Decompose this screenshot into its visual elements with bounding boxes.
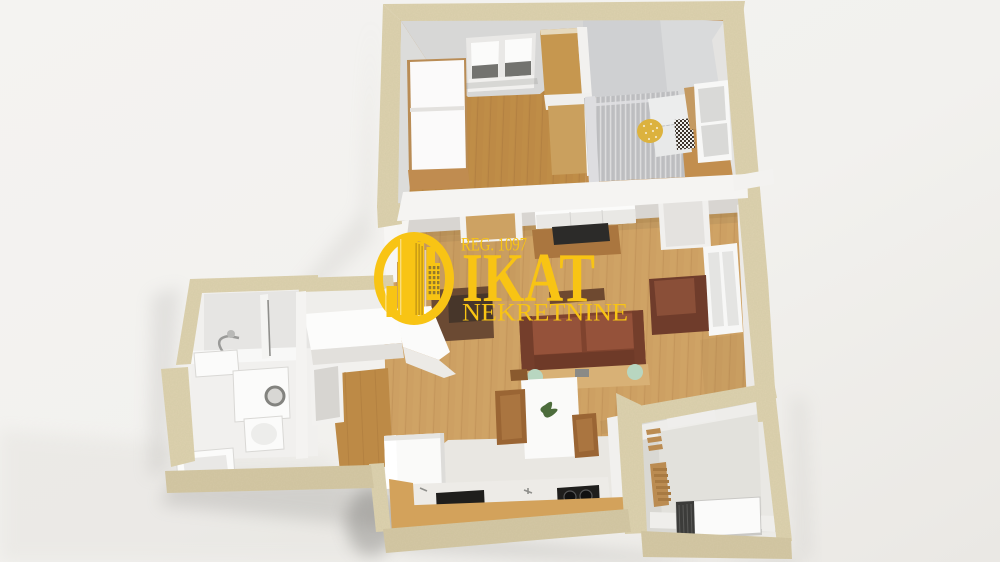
svg-text:NEKRETNINE: NEKRETNINE	[462, 300, 628, 327]
